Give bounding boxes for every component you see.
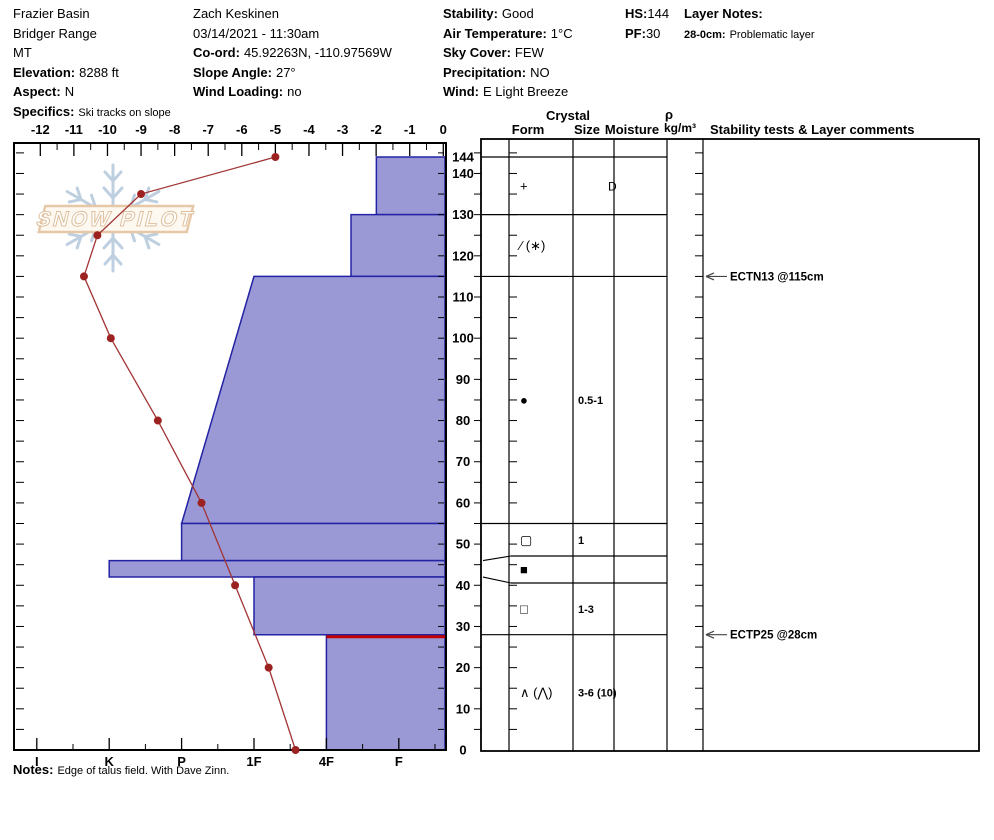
hardness-layer <box>182 524 445 561</box>
moisture-header: Moisture <box>605 122 659 137</box>
grain-size-value: 3-6 (10) <box>578 687 617 699</box>
snowpit-report: Frazier Basin Bridger Range MT Elevation… <box>0 0 994 840</box>
size-header: Size <box>574 122 600 137</box>
temp-tick-label: -4 <box>303 122 315 137</box>
temp-tick-label: -6 <box>236 122 248 137</box>
density-units-header: kg/m³ <box>664 121 696 135</box>
depth-axis-label: 50 <box>456 537 470 552</box>
depth-axis-label: 120 <box>452 248 474 263</box>
depth-axis-label: 80 <box>456 413 470 428</box>
stability-test-label: ECTP25 @28cm <box>730 630 817 642</box>
density-symbol-header: ρ <box>665 107 673 122</box>
grain-form-symbol-faceted-crystals: □ <box>520 601 528 616</box>
temp-tick-label: -9 <box>135 122 147 137</box>
depth-axis-label: 90 <box>456 372 470 387</box>
temp-tick-label: -2 <box>370 122 382 137</box>
temperature-point <box>292 746 300 754</box>
depth-axis-label: 0 <box>459 743 466 758</box>
watermark-banner: SNOW PILOT <box>34 206 198 232</box>
temp-tick-label: -5 <box>270 122 282 137</box>
depth-axis-label: 144 <box>452 149 474 164</box>
hardness-tick-label: F <box>395 754 403 769</box>
temp-tick-label: -7 <box>202 122 214 137</box>
hardness-layer <box>254 577 445 635</box>
grain-form-symbol-decomposing-fragments-with-stellars: ∕ (∗) <box>517 238 545 253</box>
hardness-layer <box>376 157 445 215</box>
temperature-point <box>93 231 101 239</box>
temp-tick-label: -12 <box>31 122 50 137</box>
grain-form-symbol-ice-crust: ■ <box>520 562 528 577</box>
hardness-layer <box>326 635 445 750</box>
depth-axis-label: 30 <box>456 619 470 634</box>
temp-tick-label: -3 <box>337 122 349 137</box>
depth-axis-label: 40 <box>456 578 470 593</box>
pit-notes: Notes:Edge of talus field. With Dave Zin… <box>13 762 229 777</box>
temperature-point <box>154 417 162 425</box>
row-leader-line <box>483 577 511 583</box>
hardness-layer <box>109 561 445 577</box>
depth-axis-label: 110 <box>453 290 474 305</box>
temperature-point <box>271 153 279 161</box>
grain-size-value: 1-3 <box>578 604 594 616</box>
crystal-header: Crystal <box>546 108 590 123</box>
stability-test-label: ECTN13 @115cm <box>730 271 824 283</box>
depth-axis-label: 100 <box>452 331 474 346</box>
snow-profile-chart: SNOW PILOT-12-11-10-9-8-7-6-5-4-3-2-1014… <box>0 0 994 840</box>
temperature-point <box>80 272 88 280</box>
hardness-tick-label: 4F <box>319 754 334 769</box>
hardness-layer <box>351 215 445 277</box>
depth-axis-label: 10 <box>456 701 470 716</box>
grain-form-symbol-rounded-grains: ● <box>520 392 528 407</box>
temperature-point <box>137 190 145 198</box>
temperature-point <box>107 334 115 342</box>
depth-axis-label: 60 <box>456 495 470 510</box>
temp-tick-label: -1 <box>404 122 416 137</box>
hardness-tick-label: 1F <box>246 754 261 769</box>
temp-tick-label: -11 <box>65 122 83 137</box>
layer-table-frame <box>481 139 979 751</box>
depth-axis-label: 130 <box>452 207 474 222</box>
grain-size-value: 0.5-1 <box>578 395 603 407</box>
hardness-layer <box>182 276 445 523</box>
depth-axis-label: 20 <box>456 660 470 675</box>
temp-tick-label: 0 <box>440 122 447 137</box>
row-leader-line <box>483 556 511 561</box>
grain-form-symbol-rounding-faceted-particles: ▢ <box>520 532 532 547</box>
temperature-point <box>265 664 273 672</box>
depth-axis-label: 70 <box>456 454 470 469</box>
form-header: Form <box>512 122 545 137</box>
temperature-point <box>231 581 239 589</box>
grain-size-value: 1 <box>578 535 584 547</box>
temp-tick-label: -8 <box>169 122 181 137</box>
depth-axis-label: 140 <box>452 166 474 181</box>
temp-tick-label: -10 <box>98 122 117 137</box>
watermark-text: SNOW PILOT <box>34 207 198 231</box>
grain-form-symbol-depth-hoar: ∧ (⋀) <box>520 685 552 700</box>
temperature-point <box>198 499 206 507</box>
grain-form-symbol-precipitation-particles: + <box>520 178 528 193</box>
stability-column-header: Stability tests & Layer comments <box>710 122 914 137</box>
moisture-value: D <box>608 179 617 193</box>
